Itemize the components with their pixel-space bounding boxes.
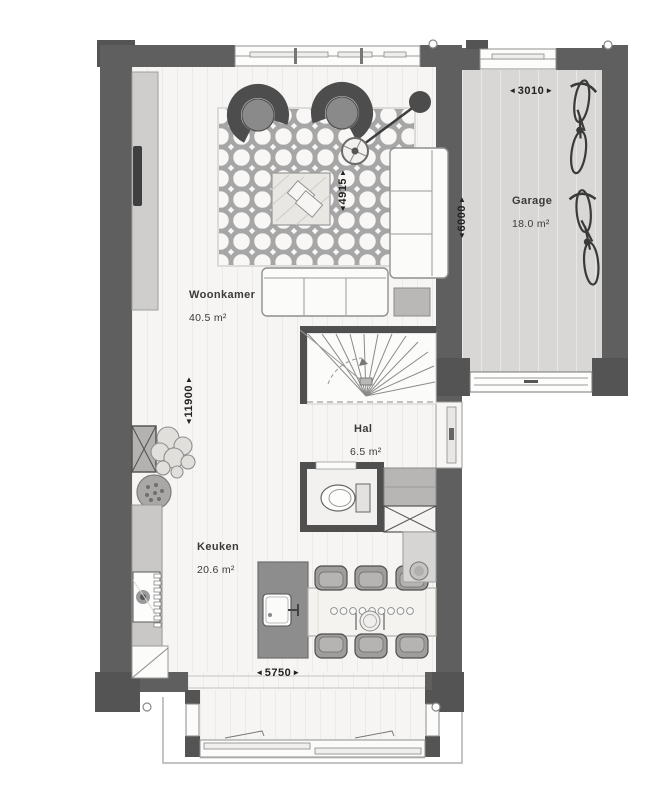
bicycle-1	[559, 79, 598, 175]
wall-garage-top-a	[462, 48, 480, 70]
meter-closet	[384, 468, 436, 532]
arrow-up-icon: ▲	[458, 196, 466, 204]
dimension-garage-depth-value: 6000	[456, 205, 468, 231]
keuken-area: 20.6 m²	[197, 564, 235, 576]
porch-window-left	[186, 704, 199, 736]
ottoman	[394, 288, 430, 316]
living-window	[235, 46, 420, 66]
coffee-table	[272, 173, 330, 225]
back-door	[132, 646, 168, 678]
toilet-room	[300, 462, 384, 532]
hal-label: Hal	[354, 423, 372, 435]
arrow-left-icon: ◄	[255, 669, 263, 677]
arrow-down-icon: ▼	[339, 205, 347, 213]
kitchen-counter	[132, 505, 162, 665]
dimension-garage-depth: ▲ 6000 ▼	[448, 180, 476, 256]
wall-top-a	[100, 45, 235, 67]
porch-wall-right-a	[425, 690, 440, 704]
sofa-vertical	[390, 148, 448, 278]
pouf	[137, 475, 171, 509]
floorplan-graphics	[0, 0, 653, 800]
wall-garage-bottom-left	[436, 358, 470, 396]
wall-garage-right	[602, 45, 628, 396]
arrow-right-icon: ►	[292, 669, 300, 677]
front-door	[436, 402, 462, 468]
tv-console	[132, 72, 158, 310]
bicycle-2	[569, 189, 603, 286]
woonkamer-area: 40.5 m²	[189, 312, 227, 324]
hal-area: 6.5 m²	[350, 446, 382, 458]
dimension-house-width: ◄ 5750 ►	[246, 667, 310, 679]
arrow-right-icon: ►	[545, 87, 553, 95]
arrow-up-icon: ▲	[185, 376, 193, 384]
wall-right-lower	[436, 468, 462, 692]
toilet	[321, 484, 370, 512]
garage-door	[470, 372, 592, 392]
staircase	[300, 326, 436, 404]
tv-icon	[133, 146, 142, 206]
porch-wall-right-b	[425, 736, 440, 757]
sofa-horizontal	[262, 268, 388, 316]
dimension-garage-width-value: 3010	[518, 85, 544, 97]
garage-label: Garage	[512, 195, 552, 207]
floor-plan: Woonkamer 40.5 m² Keuken 20.6 m² Hal 6.5…	[0, 0, 653, 800]
garage-window	[480, 49, 556, 69]
wall-top-tab	[466, 40, 488, 49]
dimension-garage-width: ◄ 3010 ►	[503, 85, 559, 97]
sideboard	[403, 532, 436, 582]
arrow-up-icon: ▲	[339, 169, 347, 177]
wall-left	[100, 45, 132, 692]
porch-wall-left-b	[185, 736, 200, 757]
wall-garage-top-b	[556, 48, 602, 70]
wall-garage-bottom-right	[592, 358, 628, 396]
dimension-living-width-value: 4915	[337, 178, 349, 204]
arrow-left-icon: ◄	[508, 87, 516, 95]
dimension-living-width: ▲ 4915 ▼	[329, 156, 357, 226]
sliding-door	[200, 731, 425, 757]
dimension-house-width-value: 5750	[265, 667, 291, 679]
dimension-house-depth-value: 11900	[183, 385, 195, 417]
porch-wall-left-a	[185, 690, 200, 704]
toilet-door	[316, 462, 356, 469]
keuken-label: Keuken	[197, 541, 239, 553]
arrow-down-icon: ▼	[458, 232, 466, 240]
kitchen-island	[258, 562, 308, 658]
dining-table	[308, 588, 436, 636]
arrow-down-icon: ▼	[185, 418, 193, 426]
woonkamer-label: Woonkamer	[189, 289, 255, 301]
garage-area: 18.0 m²	[512, 218, 550, 230]
dimension-house-depth: ▲ 11900 ▼	[175, 364, 203, 438]
